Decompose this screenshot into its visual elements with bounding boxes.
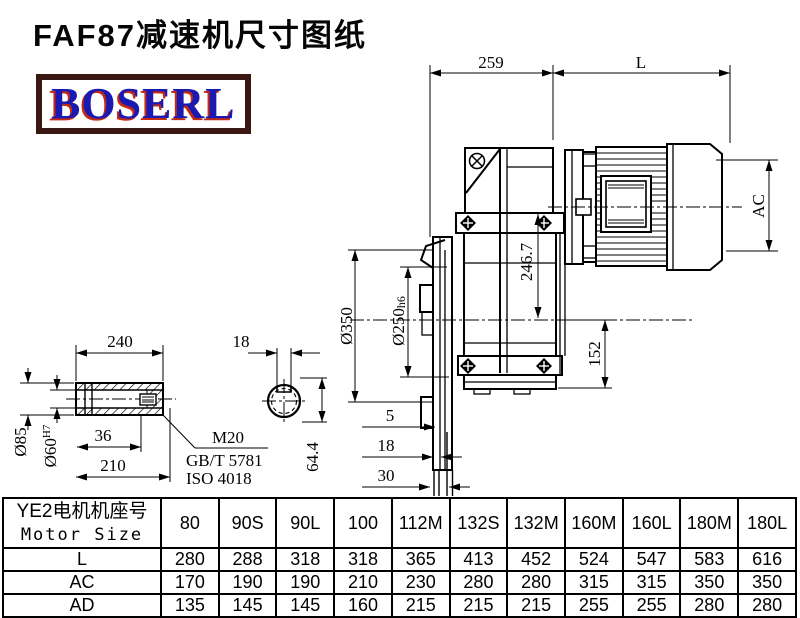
table-cell: 280 — [161, 548, 219, 571]
table-cell: 280 — [450, 571, 508, 594]
table-cell: 210 — [334, 571, 392, 594]
table-cell: 616 — [738, 548, 796, 571]
label-M20: M20 — [212, 428, 244, 447]
table-cell: 190 — [276, 571, 334, 594]
dim-d85: Ø85 — [11, 427, 30, 456]
motor-size-header-cell: YE2电机机座号 Motor Size — [3, 498, 161, 548]
dim-L: L — [636, 53, 646, 72]
col-header: 112M — [392, 498, 450, 548]
dim-d60H7: Ø60H7 — [41, 424, 60, 467]
dim-210: 210 — [100, 456, 126, 475]
table-row-AC: AC 170 190 190 210 230 280 280 315 315 3… — [3, 571, 796, 594]
col-header: 180M — [680, 498, 738, 548]
col-header: 180L — [738, 498, 796, 548]
col-header: 160L — [623, 498, 681, 548]
table-cell: 524 — [565, 548, 623, 571]
col-header: 80 — [161, 498, 219, 548]
label-ISO-4018: ISO 4018 — [186, 469, 252, 488]
table-cell: 547 — [623, 548, 681, 571]
dim-5: 5 — [386, 406, 395, 425]
table-header-row: YE2电机机座号 Motor Size 80 90S 90L 100 112M … — [3, 498, 796, 548]
table-cell: 350 — [738, 571, 796, 594]
table-cell: 280 — [507, 571, 565, 594]
dim-64-4: 64.4 — [303, 442, 322, 472]
terminal-box — [601, 176, 651, 232]
col-header: 90L — [276, 498, 334, 548]
table-cell: 288 — [219, 548, 277, 571]
table-cell: 318 — [276, 548, 334, 571]
table-cell: 350 — [680, 571, 738, 594]
dim-36: 36 — [95, 426, 112, 445]
table-cell: 318 — [334, 548, 392, 571]
dimension-lines — [20, 65, 778, 487]
table-cell: 315 — [565, 571, 623, 594]
table-cell: 413 — [450, 548, 508, 571]
table-cell: 170 — [161, 571, 219, 594]
table-cell: 230 — [392, 571, 450, 594]
label-GBT-5781: GB/T 5781 — [186, 451, 263, 470]
motor-size-header-en: Motor Size — [4, 524, 160, 546]
col-header: 160M — [565, 498, 623, 548]
col-header: 132S — [450, 498, 508, 548]
table-cell: 190 — [219, 571, 277, 594]
dim-30: 30 — [378, 466, 395, 485]
table-cell: 452 — [507, 548, 565, 571]
motor-size-table: YE2电机机座号 Motor Size 80 90S 90L 100 112M … — [2, 497, 797, 618]
col-header: 100 — [334, 498, 392, 548]
row-label: AC — [3, 571, 161, 594]
gearbox-housing — [456, 148, 565, 394]
dim-259: 259 — [478, 53, 504, 72]
dim-152: 152 — [585, 341, 604, 367]
dim-18-keyway: 18 — [233, 332, 250, 351]
dim-18-flange: 18 — [378, 436, 395, 455]
dim-d250h6: Ø250h6 — [389, 296, 408, 346]
col-header: 90S — [219, 498, 277, 548]
table-cell: 315 — [623, 571, 681, 594]
row-label: L — [3, 548, 161, 571]
table-row-L: L 280 288 318 318 365 413 452 524 547 58… — [3, 548, 796, 571]
dim-246-7: 246.7 — [517, 242, 536, 281]
table-cell: 583 — [680, 548, 738, 571]
technical-drawing: 259 L AC Ø350 Ø250h6 246.7 152 5 18 30 2… — [0, 0, 800, 497]
col-header: 132M — [507, 498, 565, 548]
dim-240: 240 — [107, 332, 133, 351]
motor-size-header-cn: YE2电机机座号 — [4, 500, 160, 524]
dim-d350: Ø350 — [337, 307, 356, 345]
dim-AC: AC — [749, 194, 768, 218]
table-cell: 365 — [392, 548, 450, 571]
